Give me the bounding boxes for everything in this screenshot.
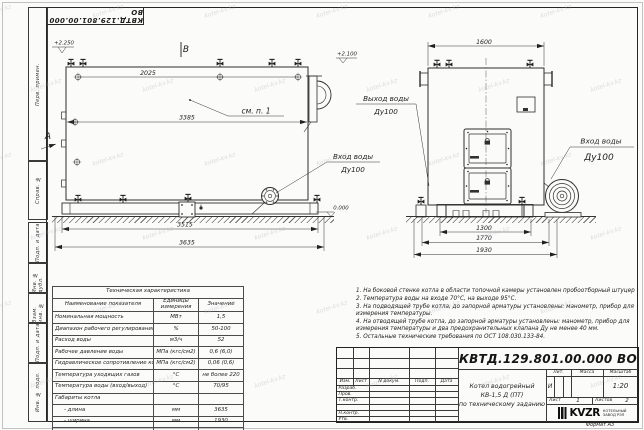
dim-1770: 1770 [476,235,492,242]
logo-bars-icon [558,407,567,419]
dim-3515: 3515 [177,222,193,229]
spec-row: Гидравлическое сопротивление котлаМПа (к… [53,358,244,370]
scale-label: Масштаб [603,370,638,375]
anchor-bolts-side [75,194,321,203]
note-item: 5. Остальные технические требования по О… [356,334,637,341]
spec-row: Температура уходящих газов°Сне более 220 [53,370,244,382]
spec-col-header: Значение [199,298,244,312]
note-reference: см. п. 1 [242,107,271,116]
sign-row-tkontr: Т.контр. [339,398,369,403]
mass-label: Масса [571,370,603,375]
spec-row: - длинамм3635 [53,405,244,417]
note-item: 1. На боковой стенке котла в области топ… [356,288,637,295]
section-label-b: В [183,45,189,55]
company-logo-text: KVZR [570,407,600,419]
note-item: 2. Температура воды на входе 70°С, на вы… [356,296,637,303]
note-item: 3. На подводящей трубе котла, до запорно… [356,304,637,319]
spec-table: Техническая характеристика Наименование … [52,286,244,430]
rev-col-list: Лист [353,379,369,384]
note-item: 4. На отводящей трубе котла, до запорной… [356,319,637,334]
sign-row-prov: Пров. [339,392,369,397]
sign-row-nkontr: Н.контр. [339,411,369,416]
side-view [62,59,332,217]
rev-col-data: Дата [435,379,458,384]
sign-row-razrab: Разраб. [339,386,369,391]
base-frame-front [416,197,533,217]
dim-3635: 3635 [179,240,195,247]
spec-col-header: Единицы измерения [154,298,199,312]
sheets-label: Листов [595,398,619,403]
outlet-label-line1: Выход воды [363,94,409,103]
drawing-sheet: Перв. примен. Справ. № Подп. и дата Инв.… [0,0,644,430]
spec-row: Расход водым3/ч52 [53,335,244,347]
title-block: Изм. Лист N докум. Подп. Дата Разраб. Пр… [336,347,639,423]
inlet-front-label-line2: Ду100 [583,153,614,163]
spec-table-title: Техническая характеристика [53,287,244,299]
spec-row: Номинальная мощностьМВт1,5 [53,312,244,324]
inlet-side-label-line2: Ду100 [340,165,365,174]
top-valves-front [434,60,534,68]
inlet-side-label-line1: Вход воды [333,152,373,161]
spec-row: Габариты котла [53,393,244,405]
dim-1930: 1930 [476,247,492,254]
sheets-total: 2 [618,398,636,404]
front-view [416,58,581,217]
technical-notes: 1. На боковой стенке котла в области топ… [356,288,637,342]
sign-row-utv: Утв. [339,417,369,422]
scale-value: 1:20 [603,382,638,390]
side-view-dimensions [41,42,429,251]
dim-1300: 1300 [476,225,492,232]
spec-row: Температура воды (вход/выход)°С70/95 [53,382,244,394]
inspection-panel [517,97,535,112]
outlet-label-line2: Ду100 [373,107,398,116]
rev-col-docnum: N докум. [369,379,409,384]
elevation-mark-right: +2.100 [337,52,358,58]
format-note: Формат А3 [565,422,635,428]
elevation-mark-zero: 0.000 [333,206,349,212]
spec-row: - ширинамм1930 [53,416,244,428]
product-name: Котел водогрейный КВ-1,5 Д (ПТ) по техни… [458,369,546,422]
drain-flange [179,202,203,217]
sheet-number: 1 [569,398,587,404]
sheet-label: Лист [549,398,569,403]
spec-row: Рабочее давление водыМПа (кгс/см2)0,6 (6… [53,347,244,359]
lit-value: И [546,383,554,390]
spec-row: Диапазон рабочего регулирования%50-100 [53,324,244,336]
dim-3385: 3385 [179,115,195,122]
blower-fan [519,180,581,218]
elevation-mark-top: +2.250 [54,41,75,47]
rev-col-izm: Изм. [337,379,353,384]
inlet-front-label-line1: Вход воды [580,137,621,146]
document-designation: КВТД.129.801.00.000 ВО [458,348,638,369]
spec-col-header: Наименование показателя [53,298,154,312]
water-inlet-flange [262,188,279,205]
front-view-dimensions [414,42,634,258]
rev-col-podp: Подп. [409,379,435,384]
company-name: КОТЕЛЬНЫЙ ЗАВОД РЭП [603,409,627,418]
company-logo: KVZR КОТЕЛЬНЫЙ ЗАВОД РЭП [546,404,638,422]
section-label-a: А [44,132,51,142]
top-valves-side [68,59,302,67]
furnace-doors [464,129,511,204]
dim-2025: 2025 [140,70,156,77]
dim-1600: 1600 [476,39,492,46]
lit-label: Лит. [546,370,571,375]
